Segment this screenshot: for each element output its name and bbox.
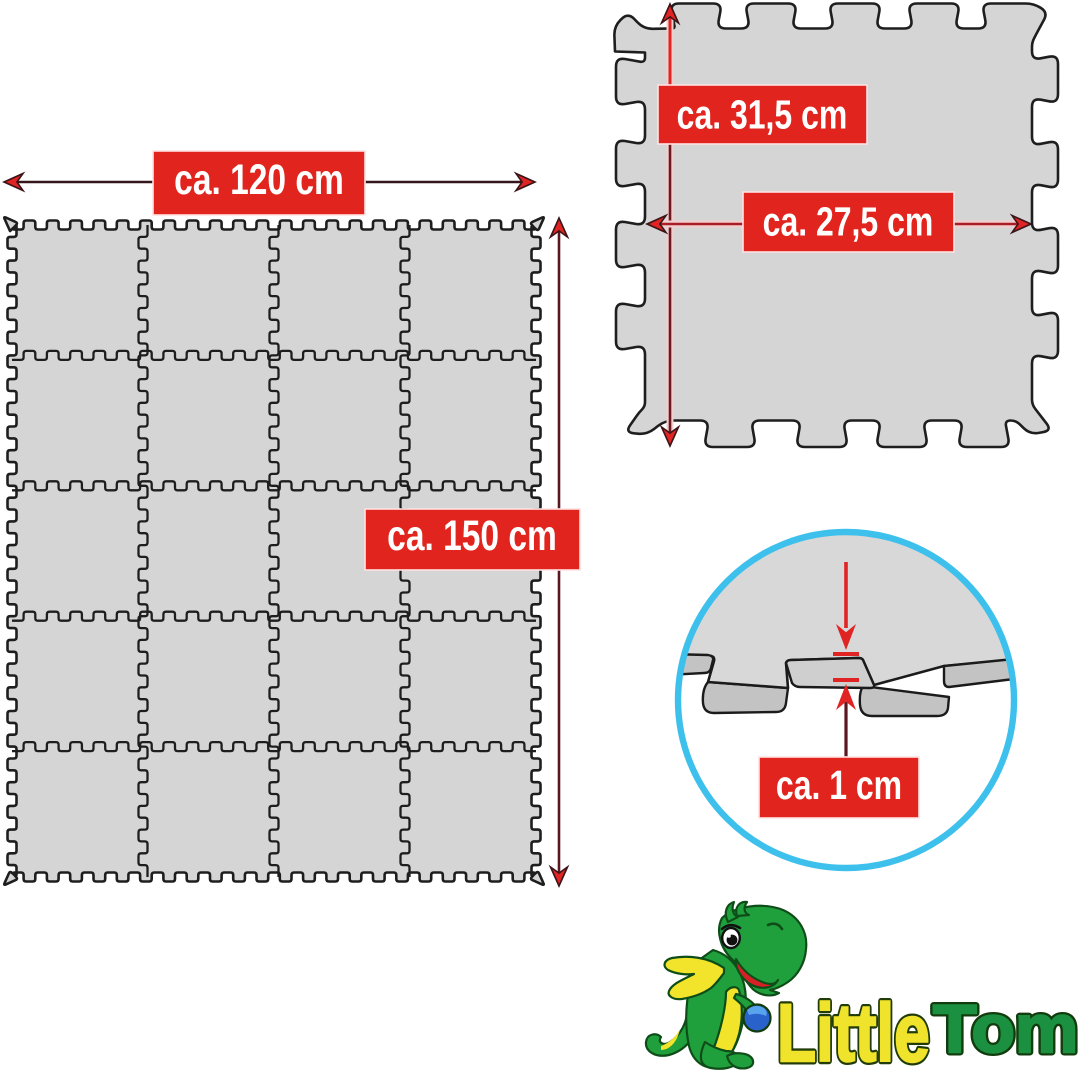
svg-text:ca. 27,5 cm: ca. 27,5 cm — [763, 199, 934, 245]
svg-text:ca. 1 cm: ca. 1 cm — [776, 762, 902, 808]
svg-text:ca. 120 cm: ca. 120 cm — [174, 156, 344, 204]
svg-text:Little: Little — [777, 986, 930, 1076]
svg-text:Tom: Tom — [933, 991, 1078, 1067]
svg-text:ca. 150 cm: ca. 150 cm — [387, 512, 557, 560]
svg-text:ca. 31,5 cm: ca. 31,5 cm — [677, 92, 848, 138]
